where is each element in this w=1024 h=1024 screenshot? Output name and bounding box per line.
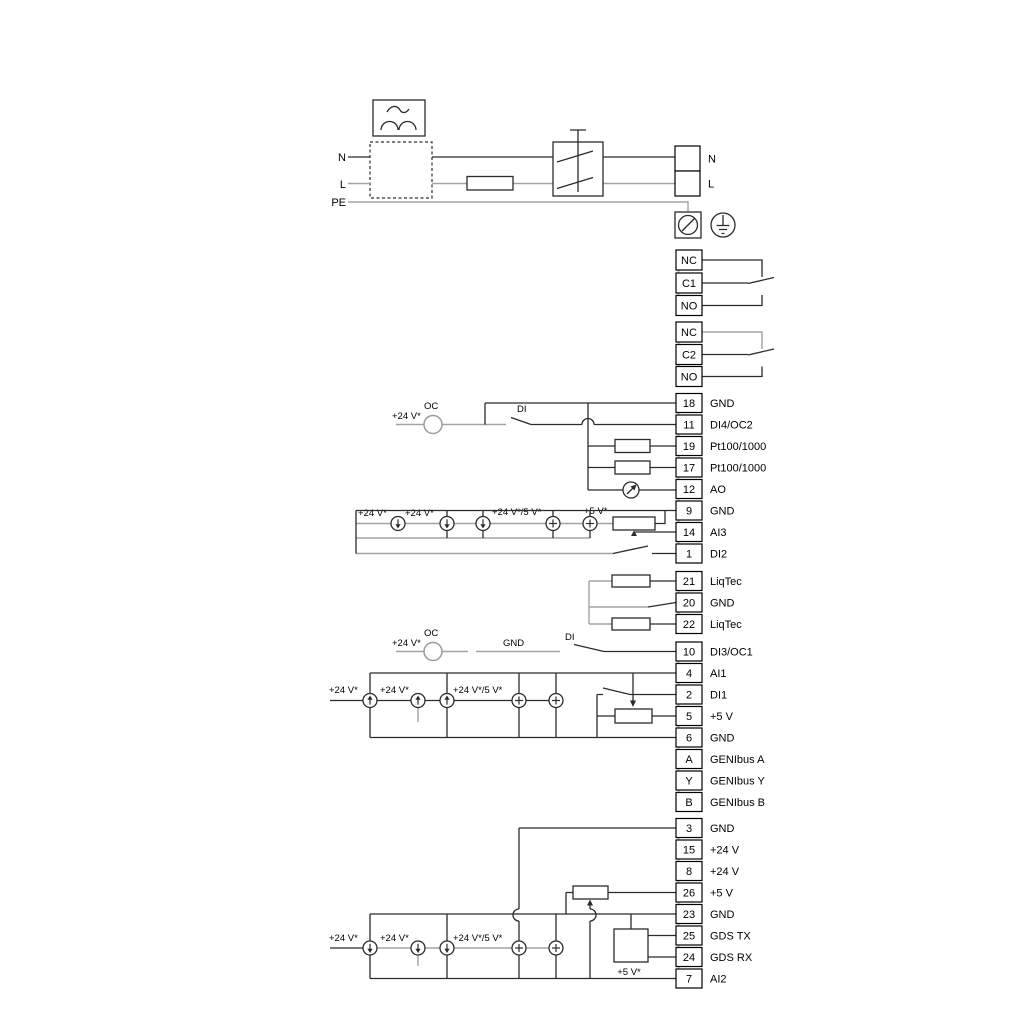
terminal-label: GENIbus B xyxy=(710,797,765,809)
terminal-label: AO xyxy=(710,484,726,496)
rowA-source4 xyxy=(546,517,560,531)
io1-di-label: DI xyxy=(517,404,527,415)
terminal-label: DI2 xyxy=(710,549,727,561)
terminal-number: NO xyxy=(681,372,698,384)
rowB-source2 xyxy=(411,694,425,708)
rowA-supply4-label: +5 V* xyxy=(584,506,608,517)
fuse xyxy=(467,177,513,191)
rowC-source1 xyxy=(363,941,377,955)
terminal-number: 1 xyxy=(686,549,692,561)
terminal-label: GDS RX xyxy=(710,952,753,964)
rowC-supply1-label: +24 V* xyxy=(329,933,358,944)
rowC-pot-wiper-arrow xyxy=(587,900,593,906)
rowB-supply3-label: +24 V*/5 V* xyxy=(453,685,503,696)
terminal-label: +5 V xyxy=(710,888,734,900)
terminal-label: L xyxy=(708,179,714,191)
io2-dark-wires xyxy=(648,581,676,624)
relay1-section: NCC1NO xyxy=(676,250,774,316)
rowC-source3 xyxy=(440,941,454,955)
terminal-number: 8 xyxy=(686,866,692,878)
terminal-label: DI1 xyxy=(710,690,727,702)
io1-oc-label: OC xyxy=(424,401,438,412)
terminal-number: 19 xyxy=(683,441,695,453)
rowB-source4 xyxy=(512,694,526,708)
terminal-label: GND xyxy=(710,506,735,518)
rowB-dark-wires xyxy=(330,673,676,738)
terminal-number: NO xyxy=(681,301,698,313)
open-collector-icon xyxy=(424,416,442,434)
terminal-number: 10 xyxy=(683,647,695,659)
terminal-number: 7 xyxy=(686,974,692,986)
rowA-source3 xyxy=(476,517,490,531)
relay2-nc-wire xyxy=(702,332,762,349)
liqtec-sensor-1 xyxy=(612,575,650,587)
terminal-number: 17 xyxy=(683,463,695,475)
terminal-number: 2 xyxy=(686,690,692,702)
analog-output-meter-icon xyxy=(623,482,639,498)
terminal-label: LiqTec xyxy=(710,619,742,631)
pt100-sensor-2 xyxy=(615,461,650,474)
terminal-number: 24 xyxy=(683,952,695,964)
io3-di-wires xyxy=(574,645,676,652)
terminal-number: Y xyxy=(685,776,693,788)
terminal-number: 21 xyxy=(683,576,695,588)
gds-sensor-box xyxy=(614,929,648,962)
io1-supply-label: +24 V* xyxy=(392,411,421,422)
pe-screw-terminal xyxy=(675,212,701,238)
ac-dc-converter-box xyxy=(373,100,425,136)
relay2-terminals: NCC2NO xyxy=(676,322,702,387)
rowA-potentiometer xyxy=(613,517,655,530)
terminal-label: Pt100/1000 xyxy=(710,441,766,453)
terminal-number: 14 xyxy=(683,527,695,539)
terminal-label: GND xyxy=(710,823,735,835)
io3-supply-label: +24 V* xyxy=(392,638,421,649)
terminal-number: 15 xyxy=(683,845,695,857)
terminal-number: NC xyxy=(681,327,697,339)
terminal-label: GENIbus Y xyxy=(710,776,765,788)
io3-di-label: DI xyxy=(565,632,575,643)
rowA-source1 xyxy=(391,517,405,531)
mains-out-terminals: NL xyxy=(675,146,716,196)
pt100-sensor-1 xyxy=(615,440,650,453)
mains-l-label: L xyxy=(340,179,346,191)
io3-oc-label: OC xyxy=(424,628,438,639)
terminal-label: LiqTec xyxy=(710,576,742,588)
rowC-source2 xyxy=(411,941,425,955)
terminal-label: N xyxy=(708,154,716,166)
rowA-source5 xyxy=(583,517,597,531)
protective-earth-icon xyxy=(711,213,735,237)
terminal-number: 12 xyxy=(683,484,695,496)
terminal-label: DI4/OC2 xyxy=(710,420,753,432)
rowC-gray-wires xyxy=(363,948,556,966)
terminal-label: +24 V xyxy=(710,845,740,857)
rowC-supply2-label: +24 V* xyxy=(380,933,409,944)
diagram-canvas: N L PE NCC1NO NCC2NO +24 V* xyxy=(0,0,1024,1024)
io3-gnd-label: GND xyxy=(503,638,524,649)
terminal-label: GND xyxy=(710,733,735,745)
terminal-cell xyxy=(675,146,700,171)
rowB-pot-wiper-arrow xyxy=(630,701,636,708)
rowB-supply1-label: +24 V* xyxy=(329,685,358,696)
rowA-pot-wiper-arrow xyxy=(631,531,637,537)
io3-section: +24 V* OC GND DI +24 V* +24 V* +24 V*/5 … xyxy=(329,628,765,812)
relay1-terminals: NCC1NO xyxy=(676,250,702,316)
open-collector-icon-2 xyxy=(424,643,442,661)
terminal-label: Pt100/1000 xyxy=(710,463,766,475)
rowC-potentiometer xyxy=(573,886,608,899)
rowB-source5 xyxy=(549,694,563,708)
io1-section: +24 V* OC DI +24 V* +24 V* +24 V*/5 V* +… xyxy=(356,394,766,564)
terminal-number: 23 xyxy=(683,909,695,921)
terminal-label: AI1 xyxy=(710,668,727,680)
terminal-number: 9 xyxy=(686,506,692,518)
terminal-number: NC xyxy=(681,255,697,267)
terminal-label: +5 V xyxy=(710,711,734,723)
rowB-source3 xyxy=(440,694,454,708)
wire-pe xyxy=(348,202,688,212)
io1-terminals: 18GND11DI4/OC219Pt100/100017Pt100/100012… xyxy=(676,394,766,564)
terminal-label: GND xyxy=(710,598,735,610)
rowA-source2 xyxy=(440,517,454,531)
terminal-number: 6 xyxy=(686,733,692,745)
wiring-diagram: N L PE NCC1NO NCC2NO +24 V* xyxy=(0,0,1024,1024)
terminal-number: 11 xyxy=(683,420,694,432)
terminal-number: 5 xyxy=(686,711,692,723)
terminal-label: GENIbus A xyxy=(710,754,765,766)
relay1-contact-wires xyxy=(702,260,774,306)
io2-section: 21LiqTec20GND22LiqTec xyxy=(589,572,742,634)
rowC-source5 xyxy=(549,941,563,955)
terminal-number: 26 xyxy=(683,888,695,900)
terminal-number: C1 xyxy=(682,278,696,290)
terminal-number: 4 xyxy=(686,668,692,680)
terminal-label: AI2 xyxy=(710,974,727,986)
io1-di-wires xyxy=(485,403,676,425)
rowC-source4 xyxy=(512,941,526,955)
mains-n-label: N xyxy=(338,152,346,164)
terminal-number: 22 xyxy=(683,619,695,631)
emc-filter-box xyxy=(370,142,432,198)
terminal-label: DI3/OC1 xyxy=(710,647,753,659)
terminal-label: GND xyxy=(710,398,735,410)
terminal-number: A xyxy=(685,754,693,766)
rowC-supply3-label: +24 V*/5 V* xyxy=(453,933,503,944)
terminal-label: GDS TX xyxy=(710,931,751,943)
terminal-number: C2 xyxy=(682,350,696,362)
terminal-label: GND xyxy=(710,909,735,921)
relay2-section: NCC2NO xyxy=(676,322,774,387)
io4-section: +24 V* +24 V* +24 V*/5 V* +5 V* 3GND15+2… xyxy=(329,819,753,989)
mains-pe-label: PE xyxy=(331,197,346,209)
rowA-supply2-label: +24 V* xyxy=(405,508,434,519)
rowB-source1 xyxy=(363,694,377,708)
rowA-supply3-label: +24 V*/5 V* xyxy=(492,507,542,518)
terminal-label: AI3 xyxy=(710,527,727,539)
terminal-number: 25 xyxy=(683,931,695,943)
io3-terminals: 10DI3/OC14AI12DI15+5 V6GNDAGENIbus AYGEN… xyxy=(676,642,765,812)
rowC-supply4-label: +5 V* xyxy=(617,967,641,978)
liqtec-sensor-2 xyxy=(612,618,650,630)
terminal-number: 20 xyxy=(683,598,695,610)
terminal-label: +24 V xyxy=(710,866,740,878)
rowB-potentiometer xyxy=(615,709,652,723)
terminal-number: 3 xyxy=(686,823,692,835)
rowA-supply1-label: +24 V* xyxy=(358,508,387,519)
terminal-cell xyxy=(675,171,700,196)
relay2-contact-wires xyxy=(702,349,774,377)
io4-terminals: 3GND15+24 V8+24 V26+5 V23GND25GDS TX24GD… xyxy=(676,819,753,989)
rowB-supply2-label: +24 V* xyxy=(380,685,409,696)
terminal-number: 18 xyxy=(683,398,695,410)
terminal-number: B xyxy=(685,797,692,809)
io2-terminals: 21LiqTec20GND22LiqTec xyxy=(676,572,742,634)
